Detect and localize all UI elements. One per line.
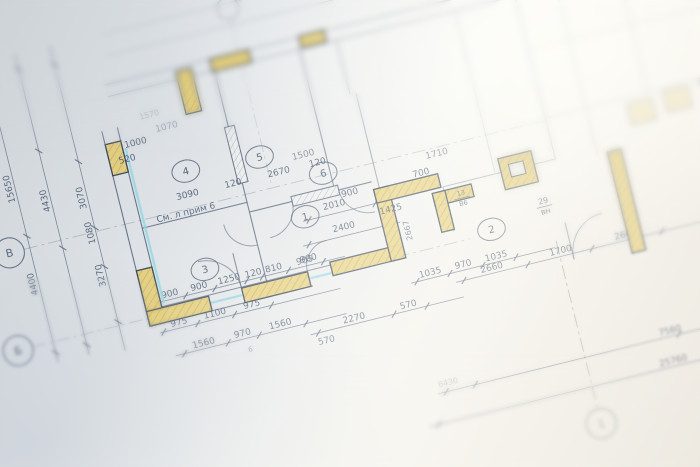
dimension-tick: [460, 277, 467, 284]
column-hole: [508, 161, 526, 177]
dimension-label: Б: [13, 344, 23, 358]
wall-hatch: [374, 174, 441, 203]
dimension-tick: [194, 320, 201, 327]
wall-hatch: [626, 98, 657, 126]
wall-line: [356, 93, 380, 188]
window-glazing-line: [311, 273, 331, 278]
wall-line: [249, 201, 292, 212]
dimension-tick: [225, 339, 232, 346]
dimension-label: 1: [301, 212, 310, 224]
dimension-label: 970: [233, 327, 252, 341]
dimension-label: 1710: [425, 147, 450, 162]
dimension-label: 2400: [332, 220, 357, 235]
dimension-tick: [15, 66, 22, 73]
dimension-tick: [256, 332, 263, 339]
dimension-tick: [285, 267, 292, 274]
dimension-tick: [211, 285, 218, 292]
dimension-label: 1000: [123, 136, 148, 151]
wall-line: [337, 40, 350, 94]
dimension-label: 1570: [138, 108, 160, 122]
wall-line: [101, 0, 499, 35]
axis-circle: [0, 235, 28, 271]
dimension-label: 810: [264, 262, 283, 276]
plan-note: См. л прим 6: [156, 201, 217, 225]
dimension-label: 3090: [175, 188, 200, 203]
dimension-tick: [423, 302, 430, 309]
dimension-label: 1: [596, 417, 606, 431]
dimension-tick: [182, 292, 189, 299]
dimension-tick: [315, 329, 322, 336]
blueprint-photo: 9009001250120810905975110097515609701560…: [0, 0, 700, 467]
dimension-label: 29: [537, 196, 549, 207]
dimension-tick: [268, 302, 275, 309]
dimension-label: 6: [319, 168, 328, 180]
dimension-tick: [59, 244, 66, 251]
wall-line: [553, 0, 598, 157]
dimension-tick: [302, 320, 309, 327]
dimension-label: 2667: [401, 220, 415, 242]
dimension-label: 120: [224, 177, 243, 191]
dimension-tick: [114, 318, 121, 325]
dimension-label: 4: [182, 166, 191, 178]
dimension-tick: [472, 381, 479, 388]
dimension-label: 5: [255, 152, 264, 164]
dimension-tick: [435, 421, 442, 428]
dimension-line: [439, 288, 700, 394]
dimension-tick: [52, 349, 59, 356]
partition-hatch: [224, 125, 248, 184]
dimension-label: 900: [190, 280, 209, 294]
dimension-tick: [75, 158, 82, 165]
dimension-tick: [231, 311, 238, 318]
wall-line: [108, 0, 515, 97]
dimension-label: 570: [317, 334, 336, 348]
dimension-label: 6430: [437, 376, 459, 390]
dimension-line: [311, 297, 464, 335]
dimension-tick: [446, 270, 453, 277]
dimension-tick: [320, 258, 327, 265]
dimension-tick: [160, 328, 167, 335]
dimension-tick: [524, 261, 531, 268]
axis-line: [556, 241, 597, 408]
dimension-tick: [23, 233, 30, 240]
dimension-tick: [305, 241, 312, 248]
wall-line: [455, 11, 495, 172]
dimension-label: 1070: [154, 120, 179, 135]
dimension-label: 970: [454, 258, 473, 272]
dimension-label: 15650: [2, 174, 19, 204]
dimension-label: 2: [487, 224, 496, 236]
dimension-tick: [51, 61, 58, 68]
dimension-label: 25760: [658, 353, 688, 370]
wall-hatch: [210, 50, 252, 72]
floor-plan-drawing: 9009001250120810905975110097515609701560…: [0, 0, 700, 467]
dimension-tick: [390, 311, 397, 318]
dimension-label: 3: [201, 264, 210, 276]
wall-line: [615, 0, 648, 93]
dimension-tick: [658, 228, 665, 235]
dimension-label: вн: [540, 206, 552, 217]
dimension-label: В6: [458, 198, 468, 208]
window-glazing-line: [211, 295, 242, 303]
dimension-label: В: [4, 246, 14, 260]
dimension-tick: [83, 341, 90, 348]
dimension-label: 120: [244, 267, 263, 281]
dimension-tick: [181, 350, 188, 357]
wall-line: [515, 0, 555, 159]
dimension-tick: [35, 147, 42, 154]
dimension-tick: [512, 254, 519, 261]
dimension-tick: [443, 388, 450, 395]
wall-hatch: [662, 85, 693, 113]
dimension-tick: [588, 245, 595, 252]
dimension-label: 570: [399, 298, 418, 312]
dimension-label: 2670: [267, 165, 292, 180]
wall-line: [529, 0, 700, 50]
dimension-label: 6: [247, 345, 253, 354]
